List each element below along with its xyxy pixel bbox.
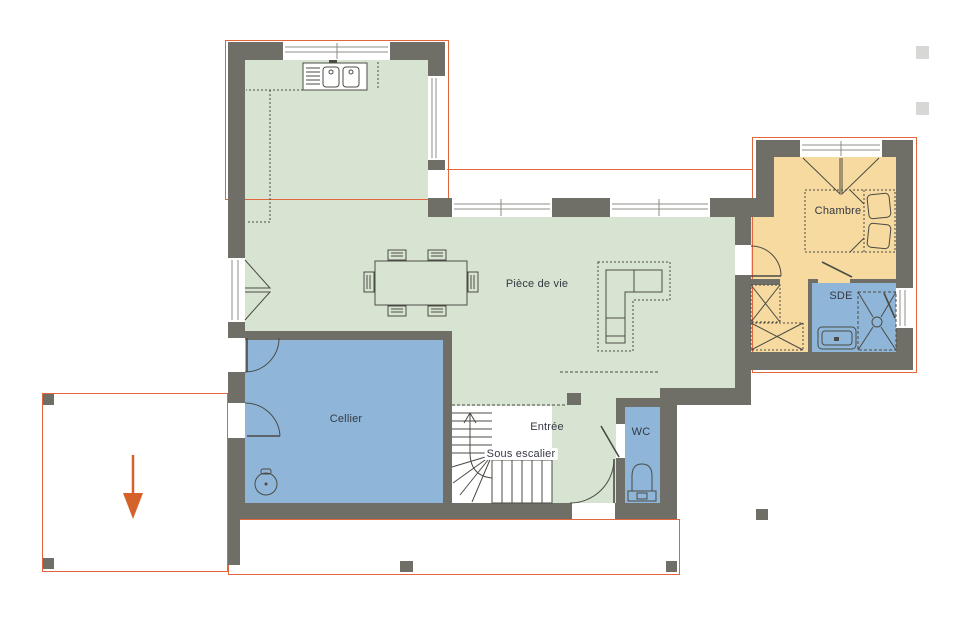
- driveway-arrow-icon: [123, 455, 143, 519]
- floor-plan: Pièce de vie Cellier Entrée Sous escalie…: [0, 0, 960, 618]
- room-label-cellier: Cellier: [330, 413, 363, 425]
- dining-table-icon: [364, 250, 478, 316]
- sde-door-icon: [822, 262, 852, 277]
- french-window-icon: [245, 158, 879, 320]
- double-bed-icon: [805, 190, 895, 252]
- room-label-piece-de-vie: Pièce de vie: [506, 278, 568, 290]
- toilet-icon: [628, 464, 656, 501]
- bedroom-door-icon: [751, 246, 781, 276]
- room-label-sous-escalier: Sous escalier: [485, 448, 558, 460]
- room-label-chambre: Chambre: [815, 205, 862, 217]
- staircase-icon: [452, 372, 660, 503]
- wardrobe-icon: [751, 285, 803, 350]
- water-heater-icon: [255, 469, 277, 495]
- vanity-sink-icon: [818, 327, 856, 349]
- room-label-wc: WC: [632, 426, 651, 438]
- entrance-door-icon: [570, 459, 614, 503]
- kitchen-sink-icon: [303, 60, 367, 90]
- room-label-entree: Entrée: [530, 421, 564, 433]
- wc-door-icon: [601, 426, 619, 457]
- cellier-door-icon: [245, 338, 280, 436]
- room-label-sde: SDE: [829, 290, 852, 302]
- shower-icon: [858, 292, 896, 350]
- plan-linework: [0, 0, 960, 618]
- corner-sofa-icon: [598, 262, 670, 351]
